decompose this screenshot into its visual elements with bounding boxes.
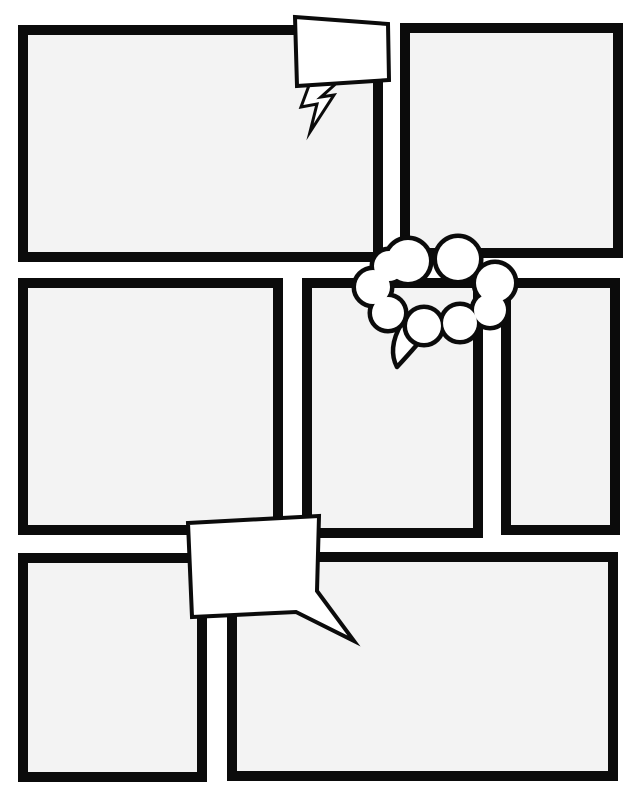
comic-page xyxy=(0,0,640,800)
speech-balloon-bottom xyxy=(188,516,354,641)
lightning-tail-icon xyxy=(301,80,340,132)
speech-balloon-top xyxy=(295,17,389,86)
balloons-overlay xyxy=(0,0,640,800)
